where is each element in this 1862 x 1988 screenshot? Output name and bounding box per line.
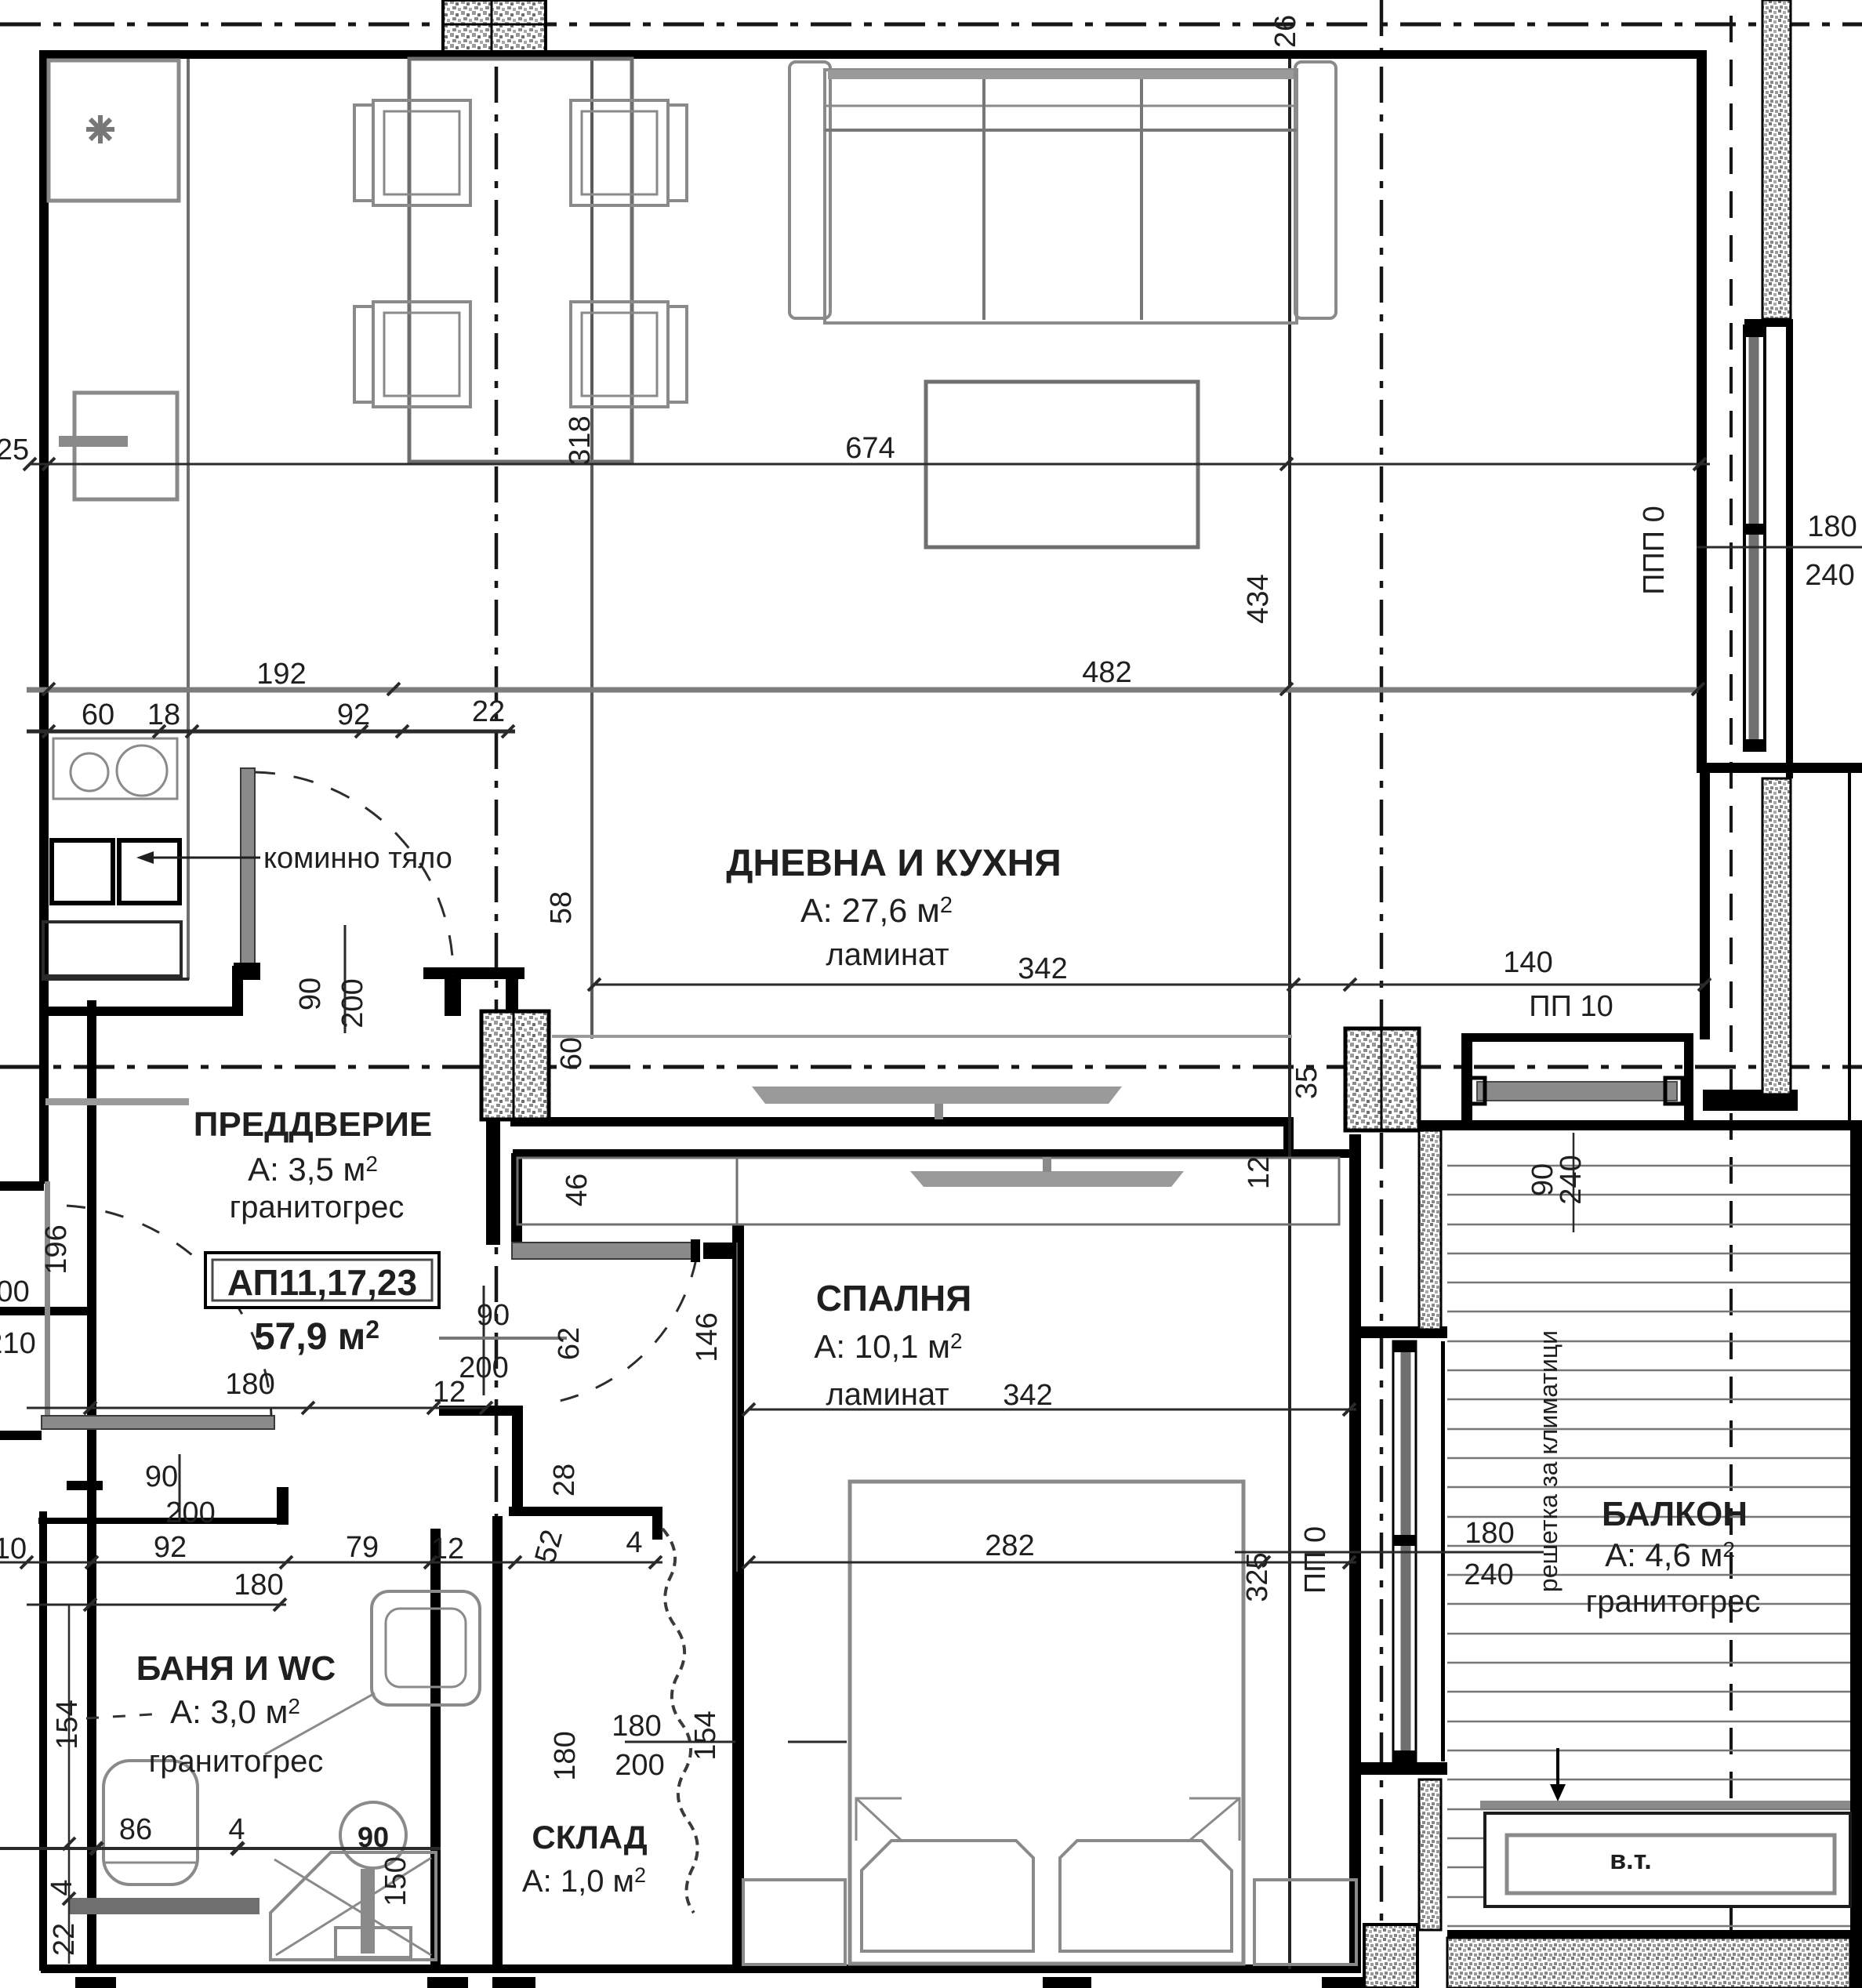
svg-text:БАНЯ И WC: БАНЯ И WC <box>136 1649 336 1688</box>
svg-text:90: 90 <box>477 1299 510 1332</box>
svg-text:86: 86 <box>119 1813 152 1846</box>
svg-text:192: 192 <box>256 658 306 691</box>
svg-text:92: 92 <box>337 698 370 731</box>
svg-text:180: 180 <box>225 1368 274 1401</box>
svg-text:ламинат: ламинат <box>826 938 949 972</box>
svg-text:12: 12 <box>431 1533 464 1565</box>
svg-text:342: 342 <box>1018 952 1067 985</box>
svg-text:ДНЕВНА И КУХНЯ: ДНЕВНА И КУХНЯ <box>726 843 1062 884</box>
svg-text:154: 154 <box>689 1710 722 1760</box>
svg-text:240: 240 <box>1805 559 1854 592</box>
svg-text:674: 674 <box>845 432 895 465</box>
svg-text:62: 62 <box>553 1327 586 1360</box>
svg-text:46: 46 <box>561 1174 593 1206</box>
svg-text:140: 140 <box>1503 946 1552 979</box>
svg-text:92: 92 <box>154 1531 187 1564</box>
svg-text:22: 22 <box>472 695 505 728</box>
svg-text:АП11,17,23: АП11,17,23 <box>227 1262 417 1303</box>
svg-text:180: 180 <box>234 1569 283 1602</box>
svg-text:СКЛАД: СКЛАД <box>532 1819 647 1856</box>
svg-text:180: 180 <box>549 1731 582 1780</box>
svg-text:146: 146 <box>691 1312 724 1362</box>
svg-text:180: 180 <box>1465 1517 1514 1550</box>
svg-text:10: 10 <box>0 1533 27 1565</box>
svg-text:240: 240 <box>1464 1558 1513 1591</box>
svg-text:240: 240 <box>1555 1155 1588 1204</box>
svg-text:ПРЕДДВЕРИЕ: ПРЕДДВЕРИЕ <box>194 1105 432 1144</box>
svg-text:ПП 0: ПП 0 <box>1299 1526 1332 1594</box>
svg-text:12: 12 <box>1243 1156 1276 1189</box>
svg-text:А: 1,0 м2: А: 1,0 м2 <box>522 1863 646 1899</box>
svg-text:гранитогрес: гранитогрес <box>149 1744 324 1779</box>
svg-text:А: 3,0 м2: А: 3,0 м2 <box>170 1693 300 1730</box>
svg-text:200: 200 <box>459 1351 508 1384</box>
svg-text:А: 4,6 м2: А: 4,6 м2 <box>1605 1536 1735 1573</box>
svg-text:в.т.: в.т. <box>1610 1845 1651 1875</box>
svg-text:58: 58 <box>545 891 578 924</box>
svg-text:434: 434 <box>1242 574 1275 623</box>
svg-text:28: 28 <box>548 1464 581 1496</box>
svg-text:4: 4 <box>45 1879 78 1895</box>
svg-text:ПП 10: ПП 10 <box>1529 990 1613 1023</box>
svg-text:210: 210 <box>0 1327 36 1360</box>
svg-text:А: 27,6 м2: А: 27,6 м2 <box>800 892 953 930</box>
svg-text:79: 79 <box>346 1531 379 1564</box>
svg-text:35: 35 <box>1290 1066 1323 1099</box>
svg-text:ППП 0: ППП 0 <box>1638 506 1671 595</box>
svg-text:342: 342 <box>1003 1379 1052 1412</box>
svg-text:180: 180 <box>612 1710 661 1743</box>
svg-text:200: 200 <box>165 1496 215 1529</box>
svg-text:90: 90 <box>145 1460 178 1493</box>
svg-text:4: 4 <box>626 1526 642 1559</box>
svg-text:гранитогрес: гранитогрес <box>230 1190 405 1224</box>
svg-text:гранитогрес: гранитогрес <box>1586 1584 1761 1619</box>
svg-text:100: 100 <box>0 1275 30 1308</box>
svg-text:180: 180 <box>1807 510 1857 543</box>
svg-text:150: 150 <box>379 1856 412 1906</box>
svg-text:57,9 м2: 57,9 м2 <box>254 1315 379 1358</box>
svg-text:196: 196 <box>40 1224 73 1274</box>
svg-text:90: 90 <box>294 978 327 1010</box>
svg-text:25: 25 <box>0 434 29 466</box>
svg-text:318: 318 <box>564 415 597 465</box>
svg-text:482: 482 <box>1082 656 1131 689</box>
svg-text:ламинат: ламинат <box>826 1377 949 1412</box>
svg-text:А: 10,1 м2: А: 10,1 м2 <box>814 1328 962 1365</box>
svg-text:СПАЛНЯ: СПАЛНЯ <box>816 1278 972 1319</box>
svg-text:154: 154 <box>51 1700 84 1749</box>
svg-text:18: 18 <box>147 698 180 731</box>
svg-text:60: 60 <box>82 698 114 731</box>
svg-text:282: 282 <box>985 1529 1034 1562</box>
svg-text:А: 3,5 м2: А: 3,5 м2 <box>248 1151 378 1188</box>
svg-text:22: 22 <box>48 1923 81 1956</box>
svg-text:200: 200 <box>336 978 369 1028</box>
svg-text:200: 200 <box>615 1749 664 1782</box>
svg-text:325: 325 <box>1241 1552 1274 1602</box>
svg-text:26: 26 <box>1269 15 1302 48</box>
svg-text:БАЛКОН: БАЛКОН <box>1602 1495 1748 1533</box>
svg-text:коминно тяло: коминно тяло <box>263 842 452 875</box>
svg-text:4: 4 <box>228 1813 245 1846</box>
svg-text:60: 60 <box>555 1037 588 1070</box>
